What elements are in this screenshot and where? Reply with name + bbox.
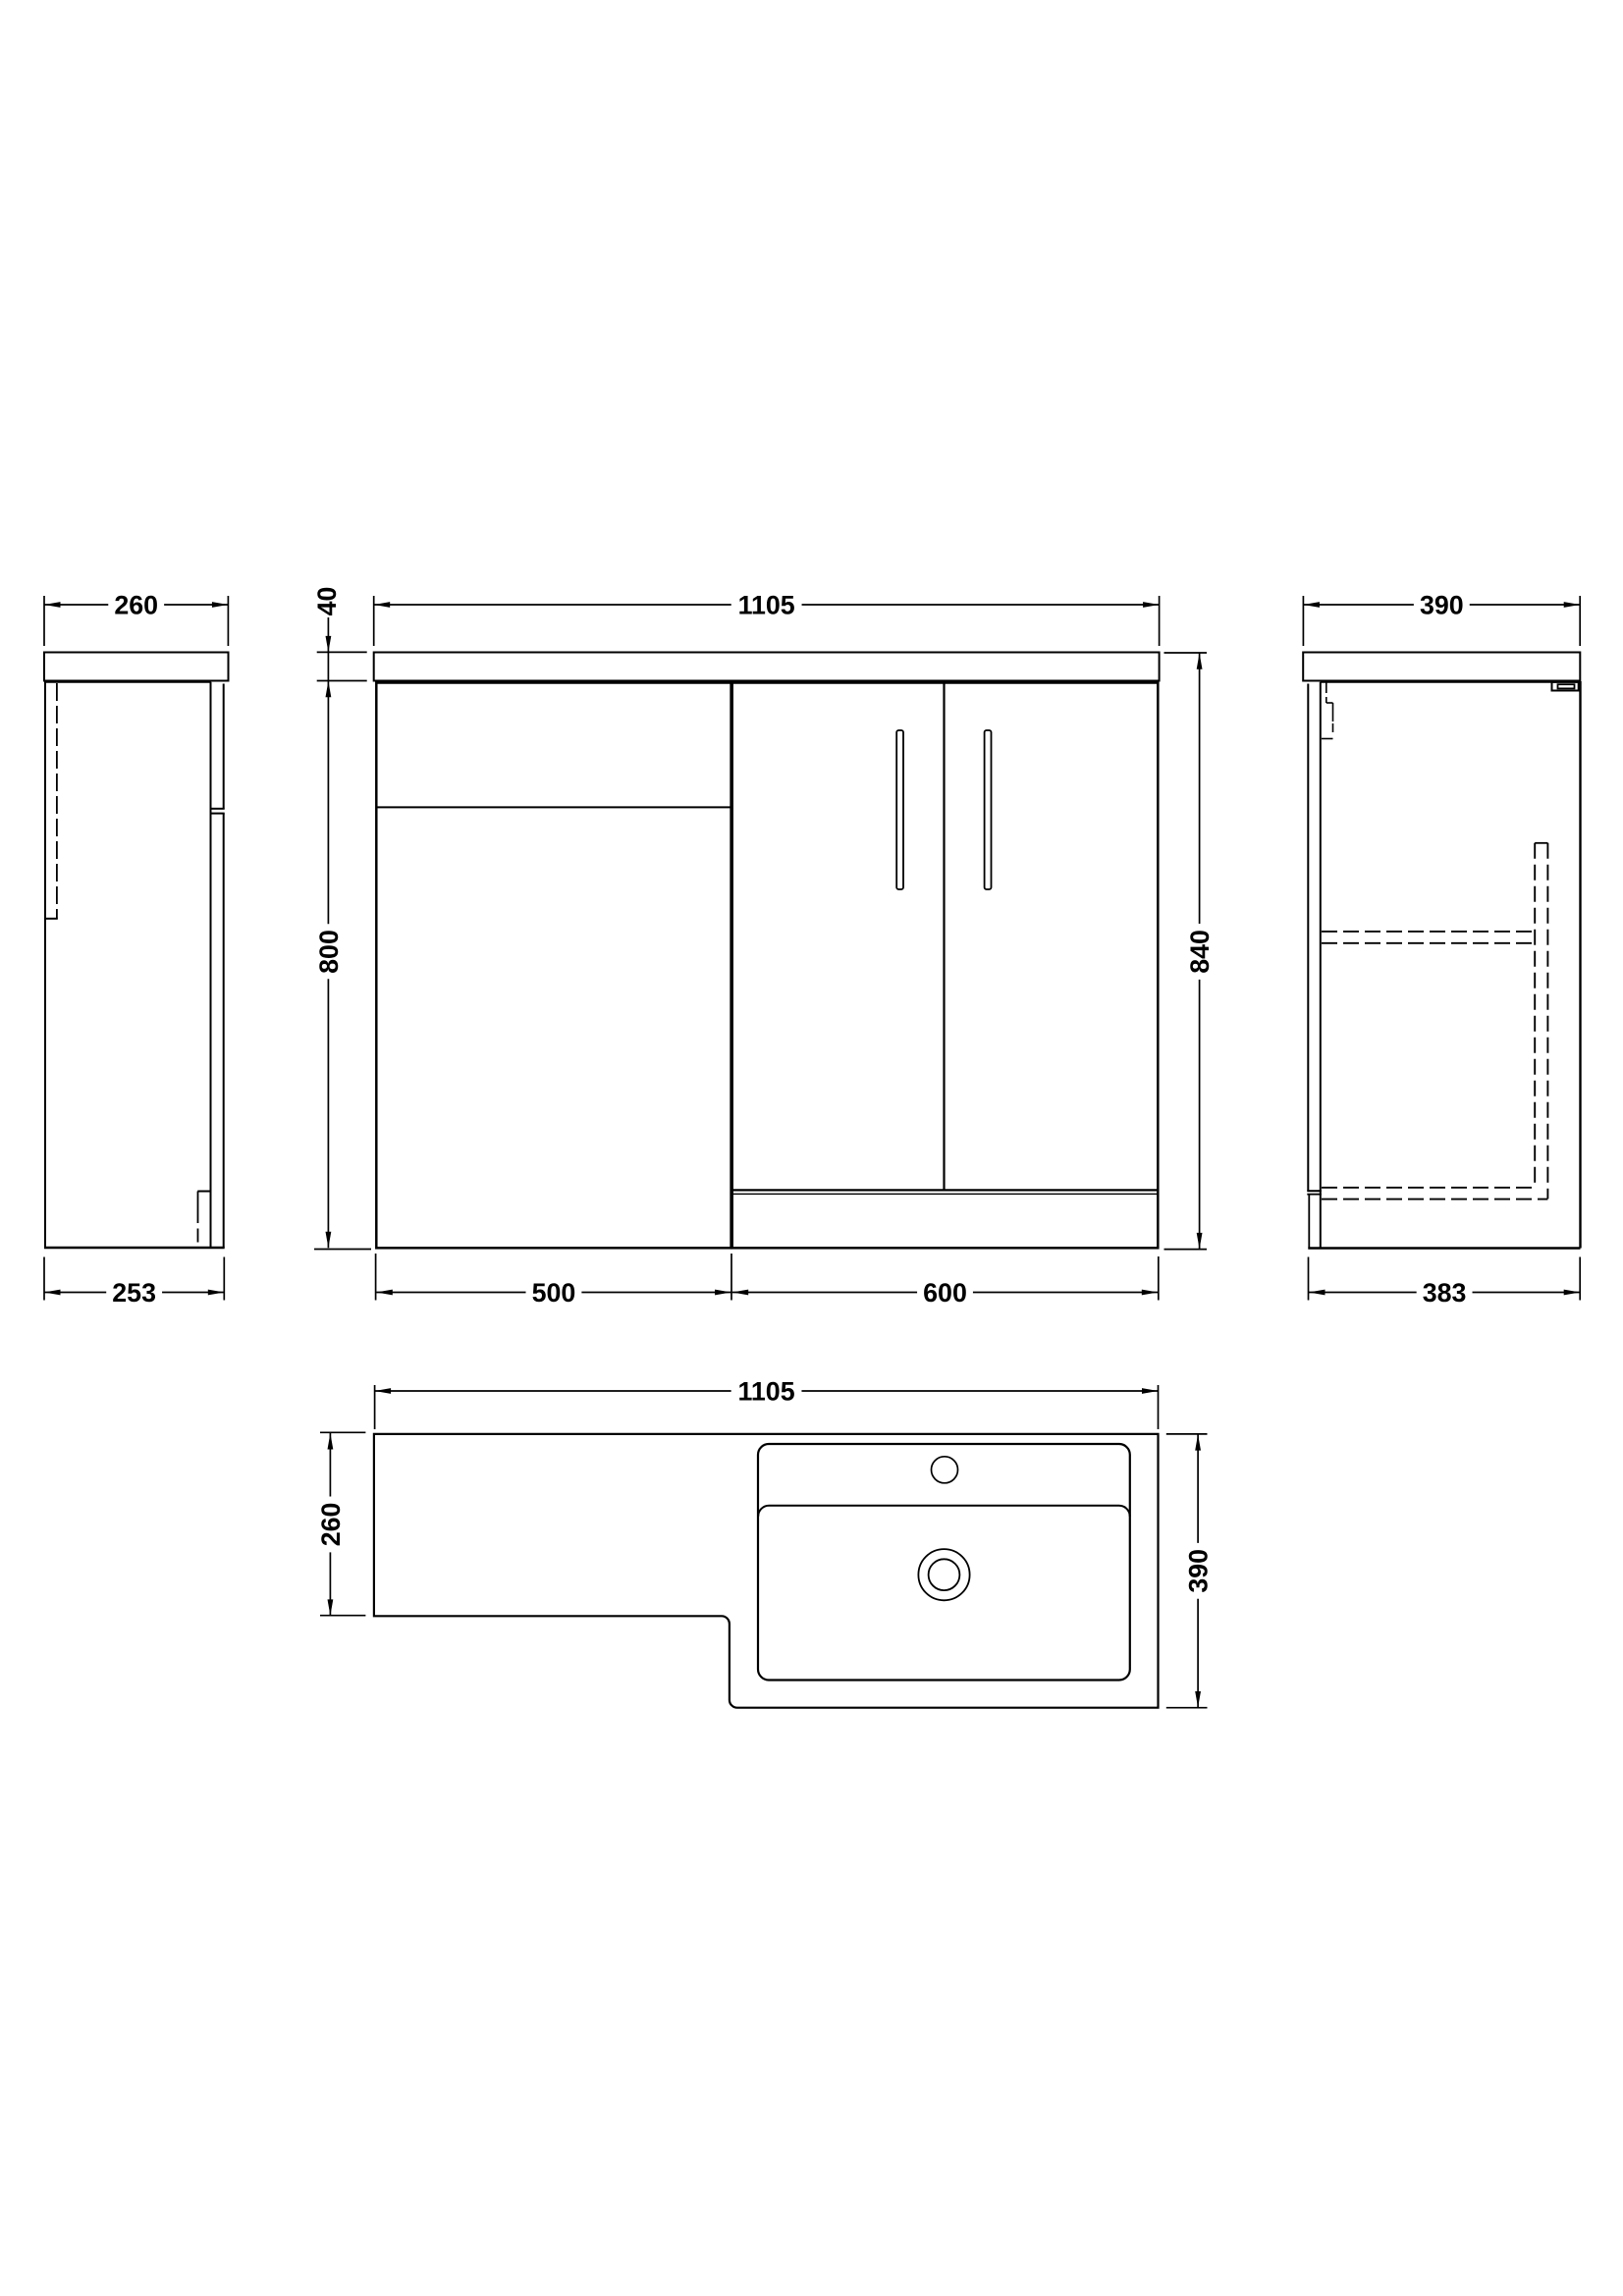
svg-text:1105: 1105 (737, 1377, 794, 1407)
svg-text:253: 253 (112, 1278, 156, 1308)
svg-text:40: 40 (312, 587, 342, 616)
svg-text:260: 260 (114, 591, 158, 620)
svg-text:600: 600 (923, 1278, 967, 1308)
svg-text:260: 260 (316, 1503, 346, 1547)
svg-text:390: 390 (1184, 1549, 1214, 1593)
svg-text:840: 840 (1185, 930, 1215, 974)
svg-text:383: 383 (1423, 1278, 1467, 1308)
svg-text:1105: 1105 (738, 591, 795, 620)
svg-text:500: 500 (532, 1278, 576, 1308)
svg-text:800: 800 (314, 930, 344, 974)
svg-text:390: 390 (1420, 591, 1464, 620)
